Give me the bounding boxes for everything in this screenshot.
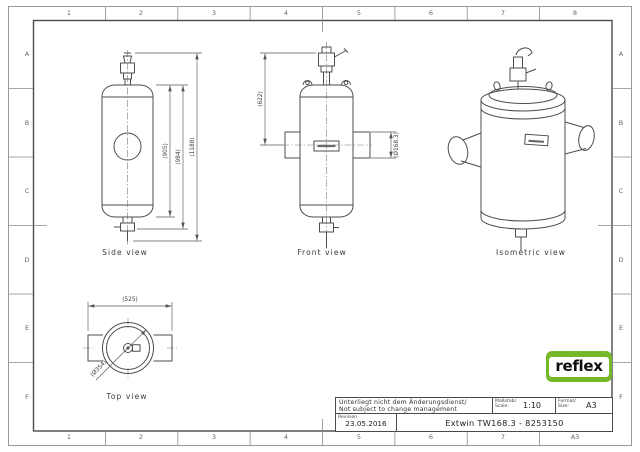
grid-label: 7	[491, 432, 515, 442]
grid-label: A	[615, 49, 627, 59]
isometric-view-caption: Isometric view	[481, 248, 581, 257]
reflex-logo-band: reflex	[549, 357, 609, 377]
side-view-caption: Side view	[75, 248, 175, 257]
grid-label: 3	[202, 432, 226, 442]
change-management-note: Unterliegt nicht dem Änderungsdienst/ No…	[336, 398, 493, 413]
format-label-en: Size:	[558, 404, 576, 409]
reflex-logo: reflex	[546, 351, 612, 382]
grid-label: 5	[347, 432, 371, 442]
drawing-title: Extwin TW168.3 - 8253150	[397, 414, 612, 431]
grid-label: 8	[563, 8, 587, 18]
center-lines	[83, 42, 372, 378]
grid-label: F	[615, 392, 627, 402]
grid-label: F	[21, 392, 33, 402]
grid-label: E	[615, 323, 627, 333]
grid-label: C	[21, 186, 33, 196]
front-view-caption: Front view	[272, 248, 372, 257]
revision-cell: Revision 23.05.2016	[336, 414, 397, 431]
grid-label: A3	[563, 432, 587, 442]
grid-label: 3	[202, 8, 226, 18]
grid-label: 7	[491, 8, 515, 18]
format-cell: Format/ Size: A3	[556, 398, 612, 413]
grid-label: D	[21, 255, 33, 265]
scale-cell: Maßstab/ Scale: 1:10	[493, 398, 556, 413]
dimension-label: (1188)	[189, 127, 197, 167]
grid-label: 4	[274, 8, 298, 18]
technical-drawing-sheet: 1 2 3 4 5 6 7 8 1 2 3 4 5 6 7 A3 A B C D…	[0, 0, 640, 452]
grid-label: A	[21, 49, 33, 59]
scale-value: 1:10	[523, 401, 541, 410]
front-view-drawing	[285, 47, 370, 248]
grid-label: 1	[57, 432, 81, 442]
dimension-label: (622)	[257, 79, 265, 119]
grid-label: D	[615, 255, 627, 265]
reflex-logo-text: reflex	[555, 357, 602, 376]
grid-label: 5	[347, 8, 371, 18]
drawing-linework	[0, 0, 640, 452]
scale-label-en: Scale:	[495, 404, 516, 409]
grid-label: B	[615, 118, 627, 128]
grid-label: 2	[129, 8, 153, 18]
grid-label: 6	[419, 432, 443, 442]
note-line-en: Not subject to change management	[339, 406, 492, 413]
dimension-label: (905)	[162, 131, 170, 171]
grid-label: 4	[274, 432, 298, 442]
dimension-label: (984)	[175, 137, 183, 177]
grid-label: E	[21, 323, 33, 333]
revision-date: 23.05.2016	[336, 419, 396, 428]
grid-label: 2	[129, 432, 153, 442]
dimension-label: (525)	[110, 296, 150, 304]
grid-label: C	[615, 186, 627, 196]
format-value: A3	[586, 401, 597, 410]
top-view-caption: Top view	[77, 392, 177, 401]
dimension-label: (Ø168.3)	[393, 125, 401, 165]
title-block: Unterliegt nicht dem Änderungsdienst/ No…	[335, 397, 613, 432]
isometric-view-drawing	[445, 48, 596, 251]
grid-label: B	[21, 118, 33, 128]
grid-label: 6	[419, 8, 443, 18]
grid-label: 1	[57, 8, 81, 18]
note-line-de: Unterliegt nicht dem Änderungsdienst/	[339, 399, 492, 406]
